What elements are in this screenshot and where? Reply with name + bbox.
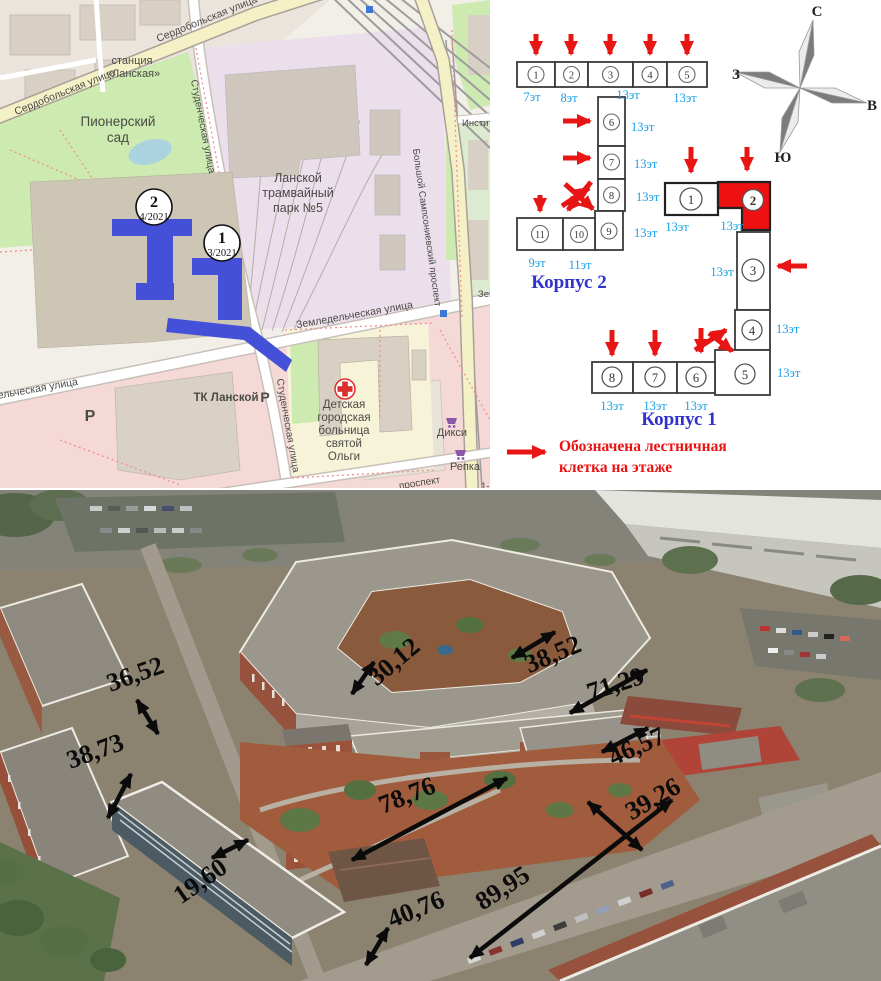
parking-icon-right: P (260, 389, 269, 405)
repka-label: Репка (450, 461, 481, 473)
k2-s4: 4 (647, 71, 653, 82)
compass-west-label: З (732, 67, 740, 83)
marker-1-number: 1 (218, 230, 226, 247)
k1-s3: 3 (750, 263, 757, 278)
k1-floor-s2: 13эт (720, 219, 744, 233)
k2-s11: 11 (535, 230, 545, 241)
k2-floor-s11: 9эт (528, 256, 546, 270)
hospital-label-line2: городская (317, 412, 370, 424)
legend-line1: Обозначена лестничная (559, 438, 727, 455)
k1-floor-s4: 13эт (776, 322, 800, 336)
tram-park-label-line3: парк №5 (273, 201, 323, 215)
k1-s2: 2 (750, 193, 757, 208)
k1-s7: 7 (652, 371, 658, 385)
tk-lanskoy-building (115, 372, 240, 480)
k1-floor-s8: 13эт (600, 399, 624, 413)
legend-line2: клетка на этаже (559, 459, 672, 476)
k1-s8: 8 (609, 371, 615, 385)
korpus2-title: Корпус 2 (531, 272, 606, 293)
k2-s5: 5 (684, 71, 689, 82)
marker-2-number: 2 (150, 194, 158, 211)
k2-floor-s6: 13эт (631, 120, 655, 134)
hospital-label-line4: святой (326, 438, 362, 450)
aerial-render: 36,52 38,73 30,12 38,52 71,29 46,57 39,2… (0, 490, 881, 981)
tram-park-label-line2: трамвайный (262, 186, 334, 200)
street-label-zemle-partial: Земле (478, 289, 490, 300)
site-map: 2 4/2021 1 3/2021 Сердобольская улица Се… (0, 0, 490, 488)
marker-1-date: 3/2021 (207, 248, 236, 259)
k2-floor-s9: 13эт (634, 226, 658, 240)
k2-floor-s2: 8эт (560, 91, 578, 105)
diksi-label: Дикси (437, 427, 467, 439)
k2-s2: 2 (569, 71, 574, 82)
compass-north-label: С (812, 4, 823, 20)
k2-floor-s5: 13эт (673, 91, 697, 105)
park-label-line1: Пионерский (81, 114, 156, 129)
hospital-label-line1: Детская (323, 399, 366, 411)
park-label-line2: сад (107, 130, 129, 145)
k2-floor-s3s4: 13эт (616, 88, 640, 102)
map-marker-1: 1 3/2021 (204, 225, 240, 261)
k2-s9: 9 (606, 227, 611, 238)
tk-lanskoy-label: ТК Ланской (193, 392, 258, 404)
k2-s1: 1 (533, 71, 538, 82)
tram-park-label-line1: Ланской (274, 171, 322, 185)
compass-east-label: В (867, 98, 877, 114)
hospital-label-line5: Ольги (328, 451, 360, 463)
k1-floor-s1: 13эт (665, 220, 689, 234)
rail-station-icon-2 (440, 310, 447, 317)
k2-floor-s10: 11эт (569, 258, 592, 272)
k2-s6: 6 (609, 118, 614, 129)
k2-s3: 3 (608, 71, 613, 82)
street-label-institutsky: Институт (462, 118, 490, 129)
station-label-line1: станция (111, 55, 152, 67)
k1-floor-s3: 13эт (710, 265, 734, 279)
k2-s10: 10 (574, 230, 584, 241)
marker-2-date: 4/2021 (139, 212, 168, 223)
k1-s6: 6 (693, 371, 699, 385)
k2-floor-s7: 13эт (634, 157, 658, 171)
k1-s5: 5 (742, 368, 748, 382)
street-label-pervy: 1-й (481, 481, 490, 488)
compass-south-label: Ю (775, 150, 792, 166)
k2-floor-s1: 7эт (523, 90, 541, 104)
map-marker-2: 2 4/2021 (136, 189, 172, 225)
k2-s7: 7 (609, 158, 614, 169)
figure-composite: 2 4/2021 1 3/2021 Сердобольская улица Се… (0, 0, 881, 981)
k1-s1: 1 (688, 192, 695, 207)
station-label-line2: «Ланская» (106, 68, 160, 80)
k2-floor-s8: 13эт (636, 190, 660, 204)
rail-station-icon (366, 6, 373, 13)
floor-scheme: 1 2 3 4 5 6 7 8 9 10 11 7эт 8эт 13эт (495, 0, 881, 488)
parking-icon-left: P (85, 408, 96, 425)
hospital-cross-icon (335, 379, 355, 399)
k2-s8: 8 (609, 191, 614, 202)
hospital-label-line3: больница (318, 425, 370, 437)
k1-s4: 4 (749, 324, 756, 338)
k1-floor-s5: 13эт (777, 366, 801, 380)
korpus1-title: Корпус 1 (641, 409, 716, 430)
